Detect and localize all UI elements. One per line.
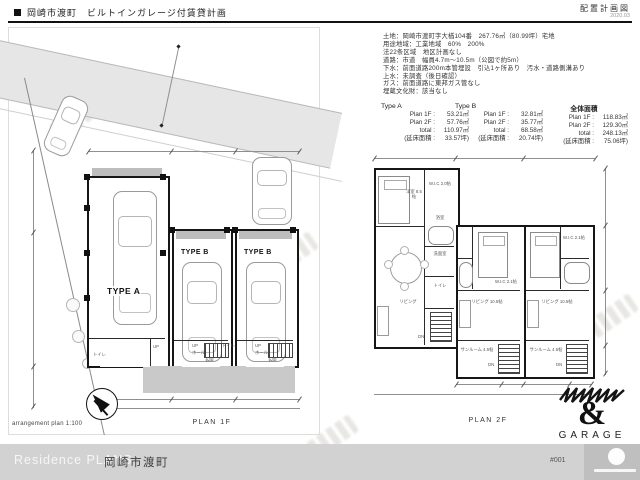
room-label-sunroom: サンルーム 4.5帖 [458, 348, 496, 353]
area-row-label: Plan 2F : [569, 122, 594, 130]
room-label-toilet: トイレ [427, 284, 453, 289]
shrub-icon [72, 330, 85, 343]
area-row-label: Plan 1F : [484, 111, 509, 119]
dimension-line-bottom [88, 399, 300, 400]
interior-wall [424, 170, 425, 345]
area-table-type-b: Type B Plan 1F :32.81㎡ Plan 2F :35.77㎡ t… [455, 103, 543, 143]
room-label-bath: 浴室 [427, 216, 453, 221]
header-rule [8, 21, 632, 23]
garage-car-type-a [113, 191, 157, 325]
footer-company-logo-icon [608, 448, 625, 465]
area-row: Plan 2F :35.77㎡ [455, 119, 543, 127]
garage-opening [182, 363, 220, 367]
room-label-living: リビング 10.5帖 [470, 300, 504, 305]
footer-sheet-number: #001 [550, 457, 566, 464]
dimension-tick [593, 155, 598, 161]
chair-icon [400, 282, 409, 291]
room-label-bedroom: 洋室 8.5帖 [404, 190, 424, 200]
room-label-genkan: 玄関 [268, 357, 277, 362]
area-row-value: 129.30㎡ [594, 122, 628, 130]
bathtub-icon [459, 262, 473, 288]
bed-pillow [384, 180, 407, 190]
area-row-label: Plan 2F : [410, 119, 435, 127]
interior-wall [458, 258, 472, 259]
bed-icon [378, 176, 410, 224]
arrangement-plan-caption: arrangement plan 1:100 [12, 421, 82, 427]
title-bullet-icon [14, 9, 21, 16]
area-row-value: 248.13㎡ [594, 130, 628, 138]
area-row-label: total : [494, 127, 509, 135]
bed-pillow [483, 236, 505, 246]
column [84, 174, 90, 180]
dimension-line-top [88, 151, 300, 152]
dining-table-icon [390, 252, 422, 284]
area-row-label: Plan 2F : [484, 119, 509, 127]
area-row-label: (延床面積 : [563, 138, 594, 146]
room-label-wic: W.I.C 2.1帖 [560, 236, 588, 241]
area-row-label: total : [420, 127, 435, 135]
shrub-icon [66, 298, 80, 312]
driveway-shading [143, 366, 295, 393]
interior-wall [237, 340, 293, 341]
site-info-block: 土地：岡崎市渡町字大楢104番 267.76㎡（80.99坪）宅地 用途地域：工… [383, 33, 633, 96]
interior-wall [526, 340, 589, 341]
site-info-line: 土地：岡崎市渡町字大楢104番 267.76㎡（80.99坪）宅地 [383, 33, 633, 41]
interior-wall [174, 340, 228, 341]
area-col-header: Type B [455, 103, 543, 110]
column [84, 205, 90, 211]
footer-project-name: 岡崎市渡町 [104, 454, 169, 470]
area-row: Plan 2F :129.30㎡ [540, 122, 628, 130]
interior-wall [424, 246, 454, 247]
column [160, 174, 166, 180]
car-windshield [187, 281, 217, 305]
sheet-title: 岡崎市渡町 ビルトインガレージ付賃貸計画 [27, 6, 227, 19]
car-icon [252, 157, 292, 225]
dimension-line-total [88, 408, 300, 409]
bathtub-icon [428, 226, 454, 245]
column [290, 227, 296, 233]
area-row-value: 68.58㎡ [509, 127, 543, 135]
plan-1f-caption: PLAN 1F [172, 419, 252, 426]
room-label-wic: W.I.C 2.0帖 [428, 182, 452, 187]
area-row-label: (延床面積 : [478, 135, 509, 143]
chair-icon [420, 260, 429, 269]
column [84, 250, 90, 256]
room-label-genkan: 玄関 [205, 357, 214, 362]
interior-wall [526, 290, 589, 291]
interior-wall [560, 258, 589, 259]
site-info-line: 埋蔵文化財：該当なし [383, 88, 633, 96]
car-rear-window [49, 136, 68, 152]
column [160, 250, 166, 256]
car-rear-window [119, 293, 151, 313]
area-row-value: 75.06坪) [594, 138, 628, 146]
area-row: total :68.58㎡ [455, 127, 543, 135]
column [224, 227, 230, 233]
room-label-up: UP [153, 344, 159, 349]
bed-pillow [535, 236, 557, 246]
stairs-down [498, 344, 520, 374]
dimension-line-left [33, 150, 34, 408]
footer-company-text [594, 469, 636, 472]
garage-canopy [176, 231, 226, 239]
interior-wall [458, 340, 520, 341]
area-col-header: 全体面積 [540, 103, 628, 113]
site-info-line: 用途地域：工業地域 60% 200% [383, 41, 633, 49]
site-info-line: 法22条区域 地区計画なし [383, 49, 633, 57]
column [84, 295, 90, 301]
interior-wall [376, 226, 424, 227]
plan-2f-caption: PLAN 2F [448, 417, 528, 424]
chair-icon [400, 246, 409, 255]
area-row-value: 20.74坪) [509, 135, 543, 143]
garage-canopy [92, 168, 162, 176]
room-label-living: リビング [396, 300, 420, 305]
room-label-hall: ホール [192, 350, 205, 355]
room-label-toilet: トイレ [222, 343, 235, 348]
room-label-dn: DN [418, 334, 424, 339]
interior-wall [458, 290, 520, 291]
room-label-up: UP [255, 343, 261, 348]
area-row: Plan 1F :32.81㎡ [455, 111, 543, 119]
dimension-tick [603, 370, 608, 376]
area-row-value: 35.77㎡ [509, 119, 543, 127]
area-row: total :248.13㎡ [540, 130, 628, 138]
room-label-washroom: 洗面室 [427, 252, 453, 257]
car-windshield [251, 281, 281, 305]
garage-opening [100, 363, 150, 367]
room-label-living: リビング 10.5帖 [540, 300, 574, 305]
drawing-sheet: 岡崎市渡町 ビルトインガレージ付賃貸計画 配置計画図 2020.03 [0, 0, 640, 480]
doc-date: 2020.03 [610, 13, 630, 19]
site-info-line: 下水：前面道路200m本管埋設 引込1ヶ所あり 汚水・道路側溝あり [383, 65, 633, 73]
room-label-hall: ホール [255, 350, 268, 355]
garage-opening [246, 363, 284, 367]
sofa-icon [527, 300, 539, 328]
room-label-dn: DN [556, 362, 562, 367]
area-row-value: 118.83㎡ [594, 114, 628, 122]
interior-wall [89, 338, 165, 339]
dimension-line-top-2f [374, 158, 595, 159]
area-row: (延床面積 :75.06坪) [540, 138, 628, 146]
stairs-up [268, 343, 293, 358]
room-label-dn: DN [488, 362, 494, 367]
room-label-wic: W.I.C 2.1帖 [492, 280, 520, 285]
room-label-up: UP [192, 343, 198, 348]
area-row-label: Plan 1F : [569, 114, 594, 122]
unit-label-type-b2: TYPE B [243, 249, 273, 256]
site-info-line: 道路：市道 幅員4.7m〜10.5m（公図で約5m） [383, 57, 633, 65]
room-label-toilet: トイレ [93, 352, 106, 357]
stairs-down [430, 312, 452, 342]
area-table-total: 全体面積 Plan 1F :118.83㎡ Plan 2F :129.30㎡ t… [540, 103, 628, 146]
room-label-sunroom: サンルーム 4.5帖 [527, 348, 565, 353]
unit-label-type-a: TYPE A [106, 286, 141, 296]
bathtub-icon [564, 262, 590, 284]
stairs-down [566, 344, 588, 374]
car-windshield [118, 216, 152, 247]
unit-label-type-b1: TYPE B [180, 249, 210, 256]
garage-canopy [239, 231, 292, 239]
logo-garage-text: GARAGE [550, 430, 634, 441]
chair-icon [384, 260, 393, 269]
interior-wall [424, 308, 454, 309]
car-windshield [59, 105, 81, 126]
column [232, 227, 238, 233]
logo-ampersand: & [562, 395, 622, 433]
area-row-label: total : [579, 130, 594, 138]
car-windshield [257, 170, 287, 187]
interior-wall [424, 276, 454, 277]
area-row: (延床面積 :20.74坪) [455, 135, 543, 143]
area-row-label: (延床面積 : [404, 135, 435, 143]
column [169, 227, 175, 233]
car-rear-window [258, 208, 286, 219]
bed-icon [478, 232, 508, 278]
area-row-value: 32.81㎡ [509, 111, 543, 119]
sofa-icon [377, 306, 389, 336]
bed-icon [530, 232, 560, 278]
area-row: Plan 1F :118.83㎡ [540, 114, 628, 122]
interior-wall [150, 338, 151, 366]
area-row-label: Plan 1F : [410, 111, 435, 119]
